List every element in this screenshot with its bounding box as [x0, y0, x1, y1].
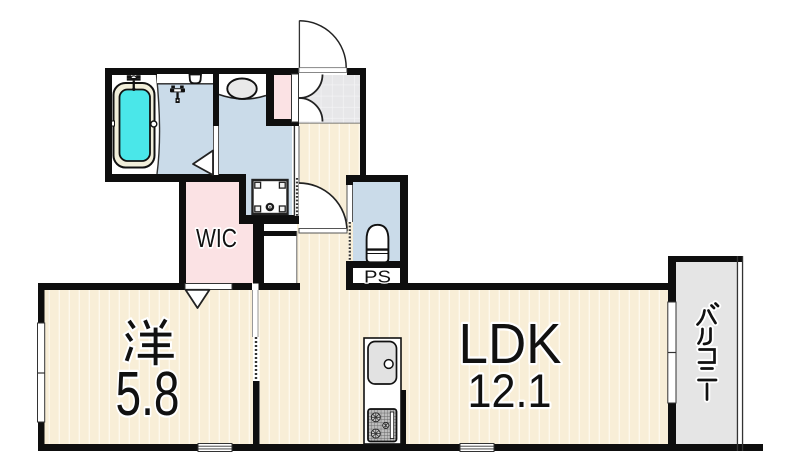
svg-text:5.8: 5.8 — [116, 360, 180, 429]
svg-text:12.1: 12.1 — [468, 365, 552, 418]
svg-text:PS: PS — [364, 266, 391, 286]
svg-text:WIC: WIC — [196, 223, 237, 253]
